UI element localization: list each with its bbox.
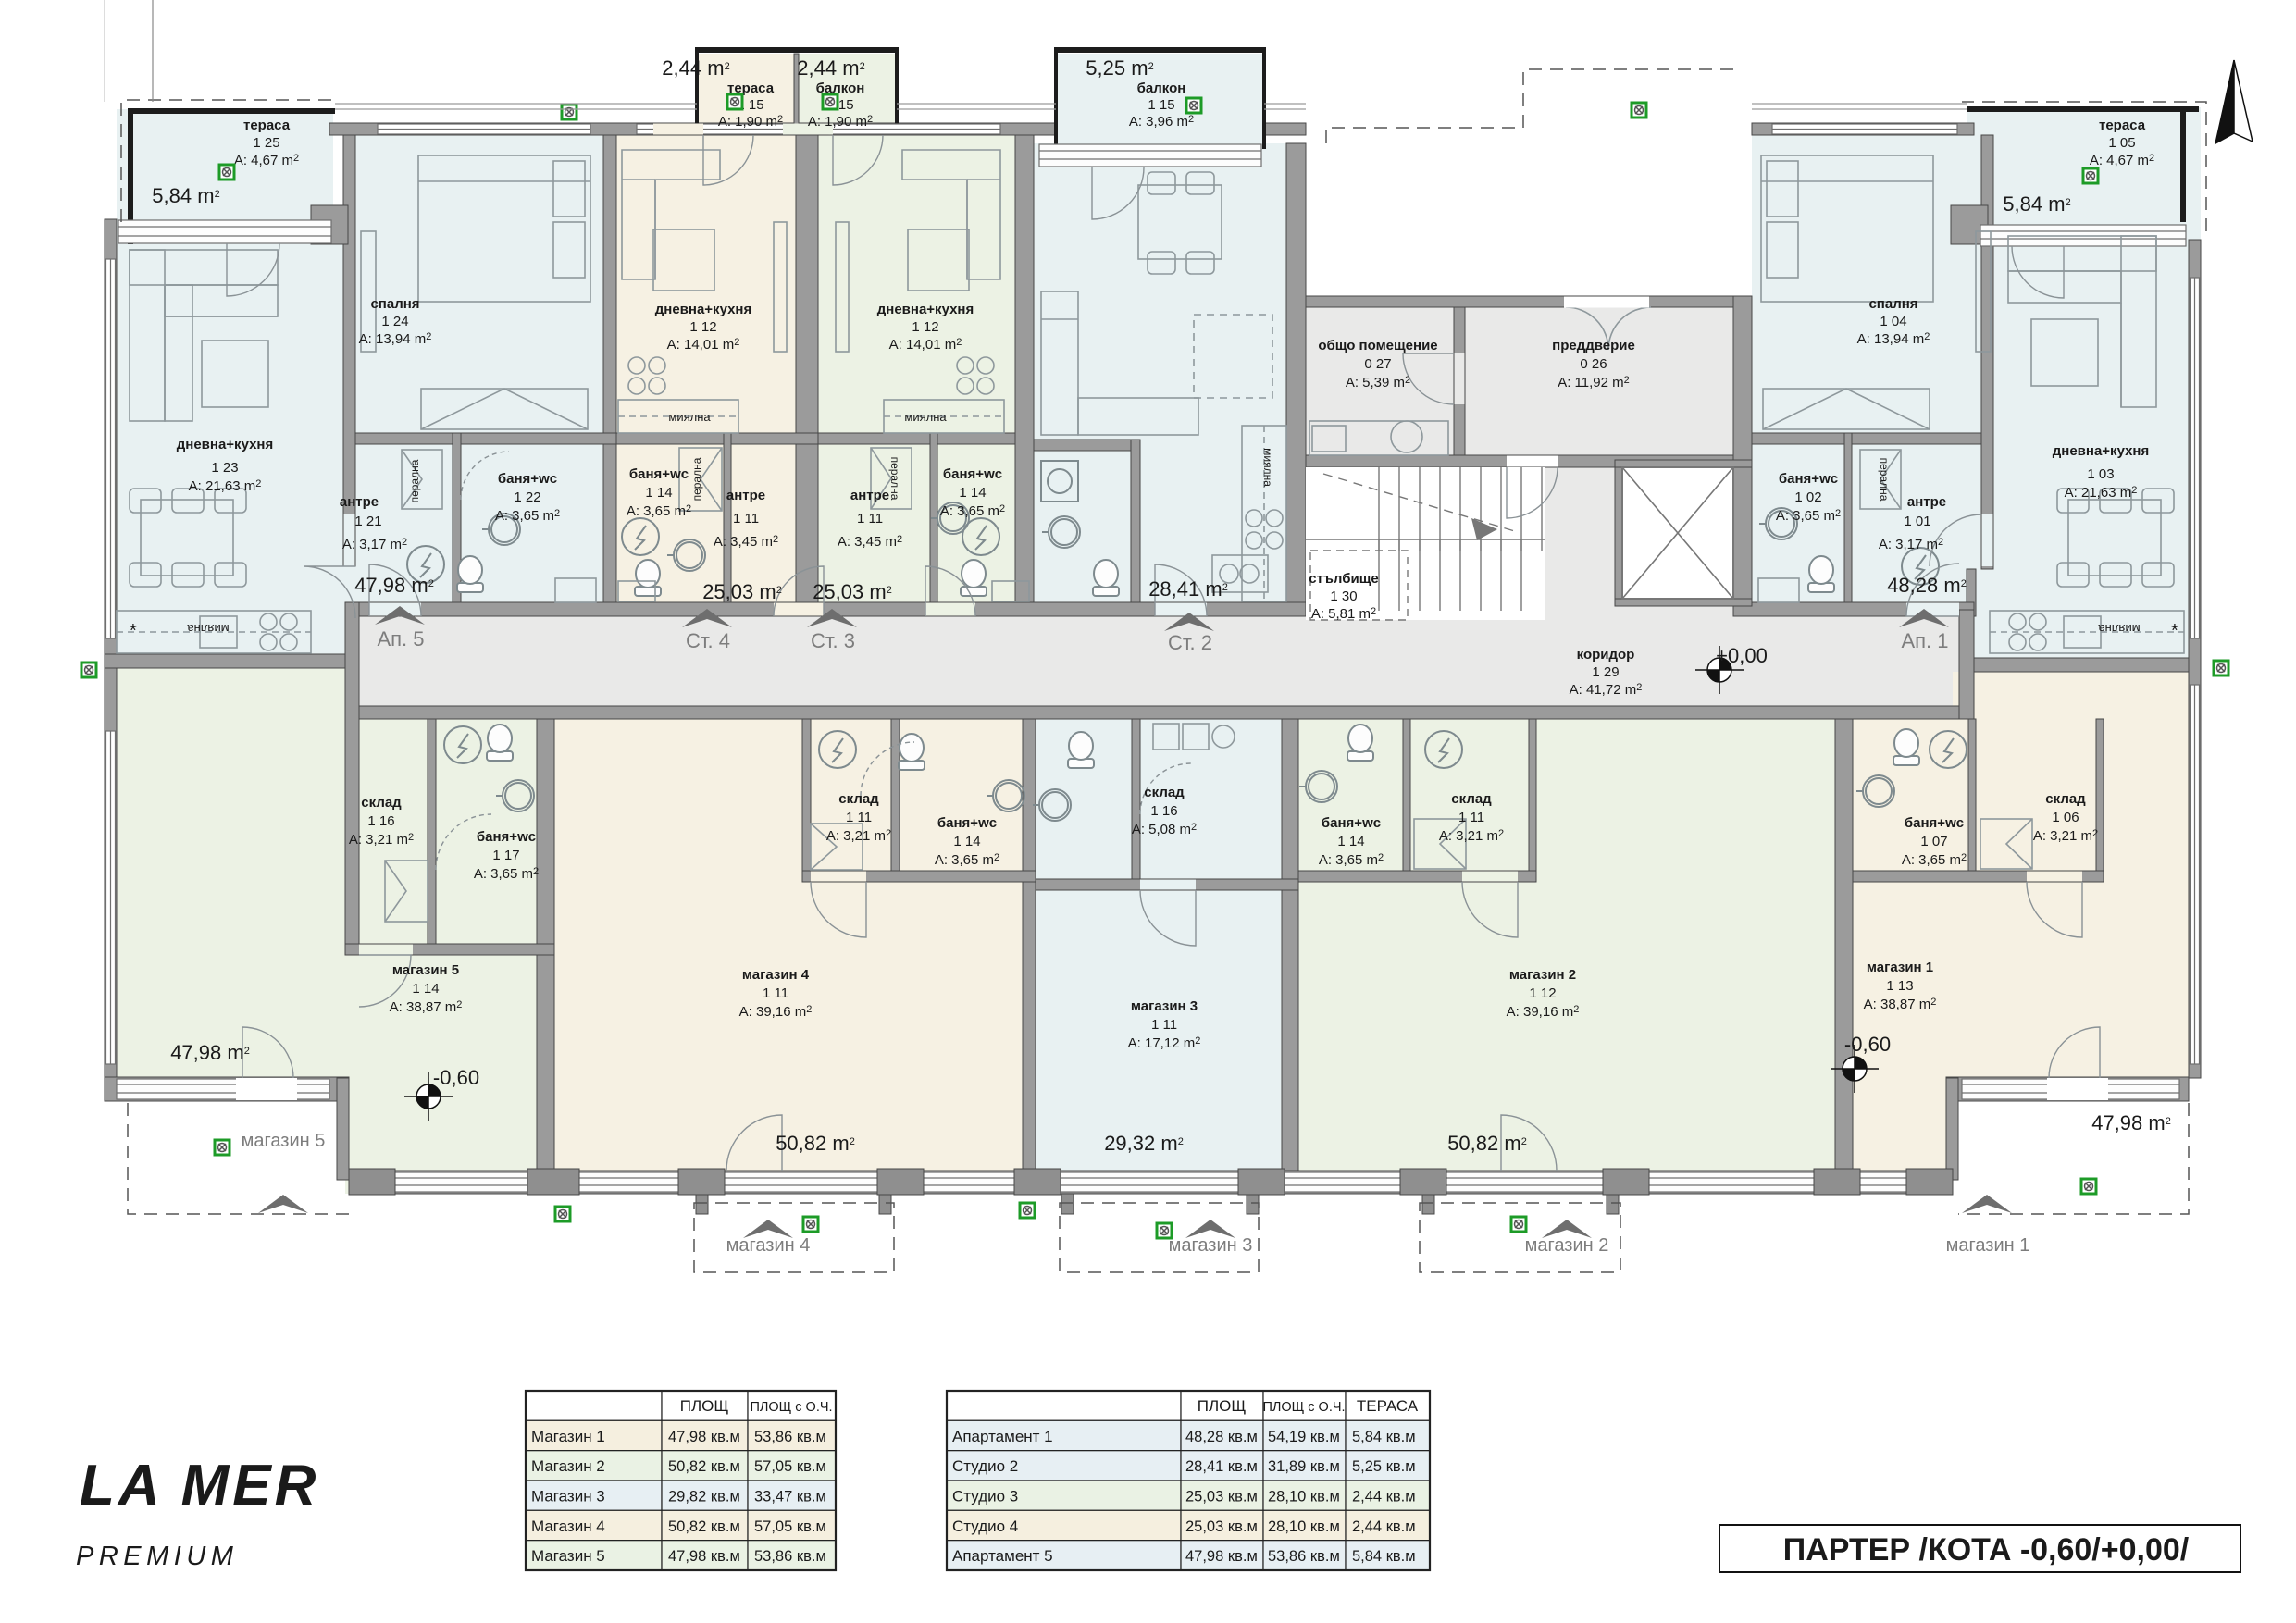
svg-text:*: * [130,621,137,641]
svg-text:A: 3,65 m2: A: 3,65 m2 [1902,852,1967,868]
svg-text:склад: склад [361,795,402,811]
svg-text:1 06: 1 06 [2052,810,2079,825]
svg-text:A: 13,94 m2: A: 13,94 m2 [1857,331,1930,347]
svg-text:5,25 m2: 5,25 m2 [1086,56,1153,80]
svg-text:A: 38,87 m2: A: 38,87 m2 [1864,997,1937,1012]
svg-text:53,86 кв.м: 53,86 кв.м [754,1429,826,1445]
svg-text:A: 1,90 m2: A: 1,90 m2 [808,114,873,130]
svg-text:25,03 кв.м: 25,03 кв.м [1185,1489,1258,1505]
svg-text:баня+wc: баня+wc [1779,471,1838,487]
svg-text:1 02: 1 02 [1794,489,1821,505]
svg-text:47,98 m2: 47,98 m2 [170,1041,250,1064]
svg-text:1 14: 1 14 [953,834,980,849]
svg-text:Студио 3: Студио 3 [952,1488,1018,1505]
svg-text:47,98 кв.м: 47,98 кв.м [668,1548,740,1565]
svg-text:A: 3,65 m2: A: 3,65 m2 [940,503,1005,519]
svg-text:28,41 m2: 28,41 m2 [1148,577,1228,601]
svg-text:спалня: спалня [370,296,419,312]
svg-text:ПЛОЩ с О.Ч.: ПЛОЩ с О.Ч. [750,1400,832,1415]
svg-text:антре: антре [1907,494,1946,510]
svg-text:A: 5,81 m2: A: 5,81 m2 [1311,606,1376,622]
svg-text:преддверие: преддверие [1552,338,1635,353]
svg-text:2,44 m2: 2,44 m2 [662,56,729,80]
svg-text:57,05 кв.м: 57,05 кв.м [754,1458,826,1475]
svg-text:Магазин 2: Магазин 2 [531,1457,605,1475]
svg-text:антре: антре [340,494,379,510]
svg-text:LA MER: LA MER [80,1454,319,1518]
svg-text:1 11: 1 11 [1151,1017,1177,1033]
svg-text:дневна+кухня: дневна+кухня [177,437,274,452]
svg-text:A: 5,39 m2: A: 5,39 m2 [1346,375,1410,390]
svg-text:Ап. 5: Ап. 5 [377,627,424,650]
svg-text:магазин 5: магазин 5 [242,1131,326,1151]
svg-text:1 07: 1 07 [1920,834,1947,849]
svg-text:общо помещение: общо помещение [1318,338,1437,353]
svg-text:Магазин 1: Магазин 1 [531,1428,605,1445]
svg-text:0 27: 0 27 [1364,356,1391,372]
svg-text:+0,00: +0,00 [1716,644,1768,667]
svg-text:A: 14,01 m2: A: 14,01 m2 [889,337,962,353]
svg-text:баня+wc: баня+wc [498,471,557,487]
svg-text:1 23: 1 23 [211,460,238,476]
svg-text:A: 21,63 m2: A: 21,63 m2 [189,478,262,494]
svg-text:баня+wc: баня+wc [477,829,536,845]
svg-text:1 24: 1 24 [381,314,408,329]
svg-text:Ап. 1: Ап. 1 [1901,629,1948,652]
svg-text:A: 3,65 m2: A: 3,65 m2 [474,866,539,882]
svg-text:33,47 кв.м: 33,47 кв.м [754,1489,826,1505]
svg-text:54,19 кв.м: 54,19 кв.м [1268,1429,1340,1445]
svg-text:A: 41,72 m2: A: 41,72 m2 [1570,682,1643,698]
svg-text:31,89 кв.м: 31,89 кв.м [1268,1458,1340,1475]
svg-text:Апартамент 1: Апартамент 1 [952,1428,1053,1445]
svg-text:Студио 4: Студио 4 [952,1518,1018,1535]
svg-text:-0,60: -0,60 [433,1066,479,1089]
svg-text:50,82 m2: 50,82 m2 [1447,1132,1527,1155]
svg-text:1 22: 1 22 [514,489,540,505]
svg-text:A: 3,21 m2: A: 3,21 m2 [2033,828,2098,844]
svg-text:A: 3,65 m2: A: 3,65 m2 [935,852,999,868]
svg-text:магазин 4: магазин 4 [726,1235,811,1256]
svg-text:тераса: тераса [243,118,291,133]
svg-text:A: 11,92 m2: A: 11,92 m2 [1558,375,1630,390]
svg-text:миялна: миялна [1261,448,1274,487]
svg-text:ПЛОЩ: ПЛОЩ [1198,1397,1247,1415]
svg-text:A: 3,45 m2: A: 3,45 m2 [714,534,778,550]
svg-text:антре: антре [726,488,765,503]
svg-text:1 11: 1 11 [1458,810,1484,825]
svg-text:A: 3,96 m2: A: 3,96 m2 [1129,114,1194,130]
svg-text:5,84 кв.м: 5,84 кв.м [1352,1429,1416,1445]
svg-text:2,44 кв.м: 2,44 кв.м [1352,1489,1416,1505]
svg-text:баня+wc: баня+wc [937,815,997,831]
svg-text:A: 38,87 m2: A: 38,87 m2 [390,999,463,1015]
svg-text:склад: склад [1451,791,1492,807]
svg-text:53,86 кв.м: 53,86 кв.м [1268,1548,1340,1565]
svg-text:баня+wc: баня+wc [1322,815,1381,831]
svg-text:1 16: 1 16 [1150,803,1177,819]
svg-text:магазин 2: магазин 2 [1509,967,1576,983]
svg-text:баня+wc: баня+wc [1905,815,1964,831]
svg-text:антре: антре [850,488,889,503]
svg-text:баня+wc: баня+wc [629,466,689,482]
svg-text:A: 5,08 m2: A: 5,08 m2 [1132,822,1197,837]
svg-text:5,84 m2: 5,84 m2 [152,184,219,207]
svg-text:50,82 кв.м: 50,82 кв.м [668,1518,740,1535]
svg-text:*: * [2171,621,2178,641]
svg-text:1 29: 1 29 [1592,664,1619,680]
svg-text:магазин 5: магазин 5 [392,962,459,978]
svg-text:1 11: 1 11 [846,810,872,825]
svg-text:миялна: миялна [2098,622,2141,636]
svg-text:A: 3,65 m2: A: 3,65 m2 [1776,508,1841,524]
svg-text:1 14: 1 14 [645,485,672,501]
svg-text:PREMIUM: PREMIUM [76,1542,238,1571]
svg-text:перална: перална [690,457,703,501]
svg-text:склад: склад [838,791,879,807]
svg-text:A: 39,16 m2: A: 39,16 m2 [1507,1004,1580,1020]
svg-text:Апартамент 5: Апартамент 5 [952,1547,1053,1565]
svg-text:53,86 кв.м: 53,86 кв.м [754,1548,826,1565]
svg-text:магазин 3: магазин 3 [1169,1235,1253,1256]
svg-text:48,28 m2: 48,28 m2 [1887,574,1967,597]
svg-text:стълбище: стълбище [1309,571,1378,587]
svg-text:дневна+кухня: дневна+кухня [2053,443,2150,459]
svg-text:Магазин 4: Магазин 4 [531,1518,605,1535]
svg-text:A: 3,45 m2: A: 3,45 m2 [838,534,902,550]
svg-text:A: 3,65 m2: A: 3,65 m2 [495,508,560,524]
svg-text:спалня: спалня [1868,296,1917,312]
svg-text:A: 3,17 m2: A: 3,17 m2 [342,537,407,552]
svg-text:0 26: 0 26 [1580,356,1607,372]
svg-text:47,98 кв.м: 47,98 кв.м [1185,1548,1258,1565]
svg-text:5,25 кв.м: 5,25 кв.м [1352,1458,1416,1475]
svg-text:A: 3,17 m2: A: 3,17 m2 [1879,537,1943,552]
svg-text:1 15: 1 15 [1148,97,1174,113]
svg-text:1 01: 1 01 [1904,514,1930,529]
svg-text:1 05: 1 05 [2108,135,2135,151]
svg-text:25,03 m2: 25,03 m2 [813,580,892,603]
svg-text:1 11: 1 11 [733,511,759,527]
svg-text:дневна+кухня: дневна+кухня [877,302,974,317]
svg-text:5,84 кв.м: 5,84 кв.м [1352,1548,1416,1565]
svg-text:A: 3,21 m2: A: 3,21 m2 [349,832,414,848]
svg-text:1 04: 1 04 [1880,314,1906,329]
svg-text:коридор: коридор [1577,647,1635,663]
svg-text:A: 39,16 m2: A: 39,16 m2 [739,1004,813,1020]
svg-text:-0,60: -0,60 [1844,1033,1891,1056]
svg-text:28,10 кв.м: 28,10 кв.м [1268,1489,1340,1505]
svg-text:магазин 1: магазин 1 [1946,1235,2030,1256]
svg-text:1 30: 1 30 [1330,588,1357,604]
svg-text:Магазин 5: Магазин 5 [531,1547,605,1565]
svg-text:Магазин 3: Магазин 3 [531,1488,605,1505]
svg-text:A: 3,21 m2: A: 3,21 m2 [1439,828,1504,844]
svg-text:5,84 m2: 5,84 m2 [2003,192,2070,216]
svg-text:1 14: 1 14 [1337,834,1364,849]
svg-text:1 12: 1 12 [1529,985,1556,1001]
svg-text:магазин 1: магазин 1 [1867,960,1933,975]
svg-text:склад: склад [2045,791,2086,807]
svg-text:магазин 2: магазин 2 [1525,1235,1609,1256]
svg-text:магазин 4: магазин 4 [742,967,810,983]
svg-text:балкон: балкон [1137,81,1186,96]
svg-text:25,03 кв.м: 25,03 кв.м [1185,1518,1258,1535]
svg-text:28,10 кв.м: 28,10 кв.м [1268,1518,1340,1535]
svg-text:Ст. 4: Ст. 4 [686,629,730,652]
svg-text:A: 4,67 m2: A: 4,67 m2 [234,153,299,168]
svg-text:миялна: миялна [904,410,947,424]
svg-text:25,03 m2: 25,03 m2 [702,580,782,603]
svg-text:дневна+кухня: дневна+кухня [655,302,752,317]
svg-text:магазин 3: магазин 3 [1131,998,1198,1014]
svg-text:1 14: 1 14 [412,981,439,997]
svg-text:1 17: 1 17 [492,848,519,863]
svg-text:1 21: 1 21 [354,514,381,529]
svg-text:1 25: 1 25 [253,135,279,151]
svg-text:1 14: 1 14 [959,485,986,501]
svg-text:1 11: 1 11 [857,511,883,527]
svg-text:1 13: 1 13 [1886,978,1913,994]
svg-text:перална: перална [1878,458,1891,502]
svg-text:баня+wc: баня+wc [943,466,1002,482]
svg-text:миялна: миялна [668,410,711,424]
svg-text:47,98 m2: 47,98 m2 [2091,1111,2171,1134]
svg-text:1 12: 1 12 [912,319,938,335]
svg-text:2,44 m2: 2,44 m2 [797,56,864,80]
svg-text:2,44 кв.м: 2,44 кв.м [1352,1518,1416,1535]
svg-text:ПЛОЩ: ПЛОЩ [680,1397,729,1415]
svg-text:29,82 кв.м: 29,82 кв.м [668,1489,740,1505]
svg-text:57,05 кв.м: 57,05 кв.м [754,1518,826,1535]
svg-text:A: 1,90 m2: A: 1,90 m2 [718,114,783,130]
svg-text:ТЕРАСА: ТЕРАСА [1357,1397,1419,1415]
svg-text:50,82 кв.м: 50,82 кв.м [668,1458,740,1475]
svg-text:Ст. 2: Ст. 2 [1168,631,1212,654]
svg-text:48,28 кв.м: 48,28 кв.м [1185,1429,1258,1445]
svg-text:ПЛОЩ с О.Ч.: ПЛОЩ с О.Ч. [1262,1400,1345,1415]
svg-text:50,82 m2: 50,82 m2 [776,1132,855,1155]
svg-text:A: 3,21 m2: A: 3,21 m2 [826,828,891,844]
svg-text:перална: перална [888,457,901,501]
svg-text:тераса: тераса [2099,118,2146,133]
svg-text:A: 14,01 m2: A: 14,01 m2 [667,337,740,353]
svg-text:47,98 кв.м: 47,98 кв.м [668,1429,740,1445]
svg-text:ПАРТЕР /КОТА -0,60/+0,00/: ПАРТЕР /КОТА -0,60/+0,00/ [1783,1532,2190,1567]
svg-text:1 12: 1 12 [689,319,716,335]
svg-text:29,32 m2: 29,32 m2 [1104,1132,1184,1155]
svg-text:1 11: 1 11 [763,985,788,1001]
svg-text:A: 4,67 m2: A: 4,67 m2 [2090,153,2154,168]
svg-text:A: 17,12 m2: A: 17,12 m2 [1128,1035,1201,1051]
svg-text:Студио 2: Студио 2 [952,1457,1018,1475]
svg-text:A: 3,65 m2: A: 3,65 m2 [627,503,691,519]
svg-text:Ст. 3: Ст. 3 [811,629,855,652]
svg-text:A: 13,94 m2: A: 13,94 m2 [359,331,432,347]
svg-text:склад: склад [1144,785,1185,800]
svg-text:перална: перална [408,459,421,502]
svg-text:47,98 m2: 47,98 m2 [354,574,434,597]
svg-text:миялна: миялна [187,622,230,636]
svg-text:1 16: 1 16 [367,813,394,829]
svg-text:28,41 кв.м: 28,41 кв.м [1185,1458,1258,1475]
svg-text:1 03: 1 03 [2087,466,2114,482]
svg-text:A: 21,63 m2: A: 21,63 m2 [2065,485,2138,501]
svg-text:A: 3,65 m2: A: 3,65 m2 [1319,852,1384,868]
